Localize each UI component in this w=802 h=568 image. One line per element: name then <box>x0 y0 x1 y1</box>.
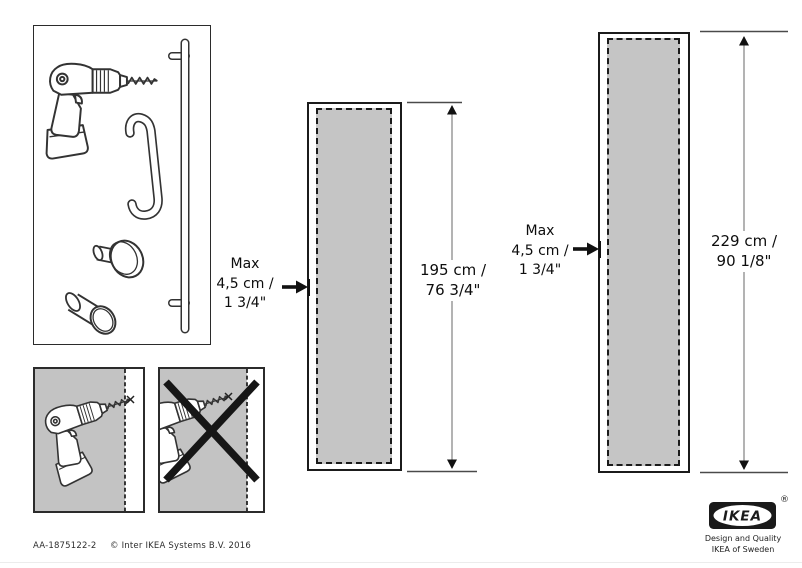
drill-correct-panel <box>33 367 145 513</box>
drill-incorrect-panel <box>158 367 265 513</box>
max-depth-label: Max 4,5 cm / 1 3/4" <box>205 255 285 314</box>
rail-handle-icon <box>172 43 186 329</box>
max-depth-label: Max 4,5 cm / 1 3/4" <box>500 222 580 281</box>
parts-illustration <box>34 26 209 343</box>
copyright-notice: © Inter IKEA Systems B.V. 2016 <box>110 541 251 551</box>
door-229-outline <box>598 32 690 473</box>
pull-handle-icon <box>130 118 159 216</box>
ikea-logo: IKEA <box>708 501 778 531</box>
max-cm: 4,5 cm / <box>500 242 580 262</box>
included-parts-box <box>33 25 211 345</box>
cylinder-knob-icon <box>63 291 120 339</box>
height-inch: 90 1/8" <box>705 252 783 272</box>
max-inch: 1 3/4" <box>500 261 580 281</box>
ikea-logo-text: IKEA <box>723 509 762 525</box>
round-knob-icon <box>92 235 150 283</box>
registered-trademark: ® <box>780 495 789 505</box>
max-inch: 1 3/4" <box>205 294 285 314</box>
max-word: Max <box>205 255 285 275</box>
height-cm: 195 cm / <box>414 261 492 281</box>
right-arrow-icon <box>282 279 308 295</box>
max-word: Max <box>500 222 580 242</box>
door-195-height-label: 195 cm / 76 3/4" <box>414 260 492 301</box>
door-195-drill-zone <box>316 108 392 464</box>
door-195-edge-tick <box>308 279 311 296</box>
door-229-drill-zone <box>607 38 680 466</box>
door-229-edge-tick <box>599 241 602 258</box>
instruction-page: Max 4,5 cm / 1 3/4" 195 cm / 76 3/4" Max… <box>0 0 802 568</box>
document-id: AA-1875122-2 <box>33 541 96 551</box>
height-inch: 76 3/4" <box>414 281 492 301</box>
page-bottom-divider <box>0 562 802 563</box>
tagline-line2: IKEA of Sweden <box>695 545 791 556</box>
ikea-tagline: Design and Quality IKEA of Sweden <box>695 534 791 555</box>
door-229-height-label: 229 cm / 90 1/8" <box>705 231 783 272</box>
drill-icon <box>47 64 158 159</box>
tagline-line1: Design and Quality <box>695 534 791 545</box>
max-cm: 4,5 cm / <box>205 275 285 295</box>
height-cm: 229 cm / <box>705 232 783 252</box>
right-arrow-icon <box>573 241 599 257</box>
door-195-outline <box>307 102 402 471</box>
